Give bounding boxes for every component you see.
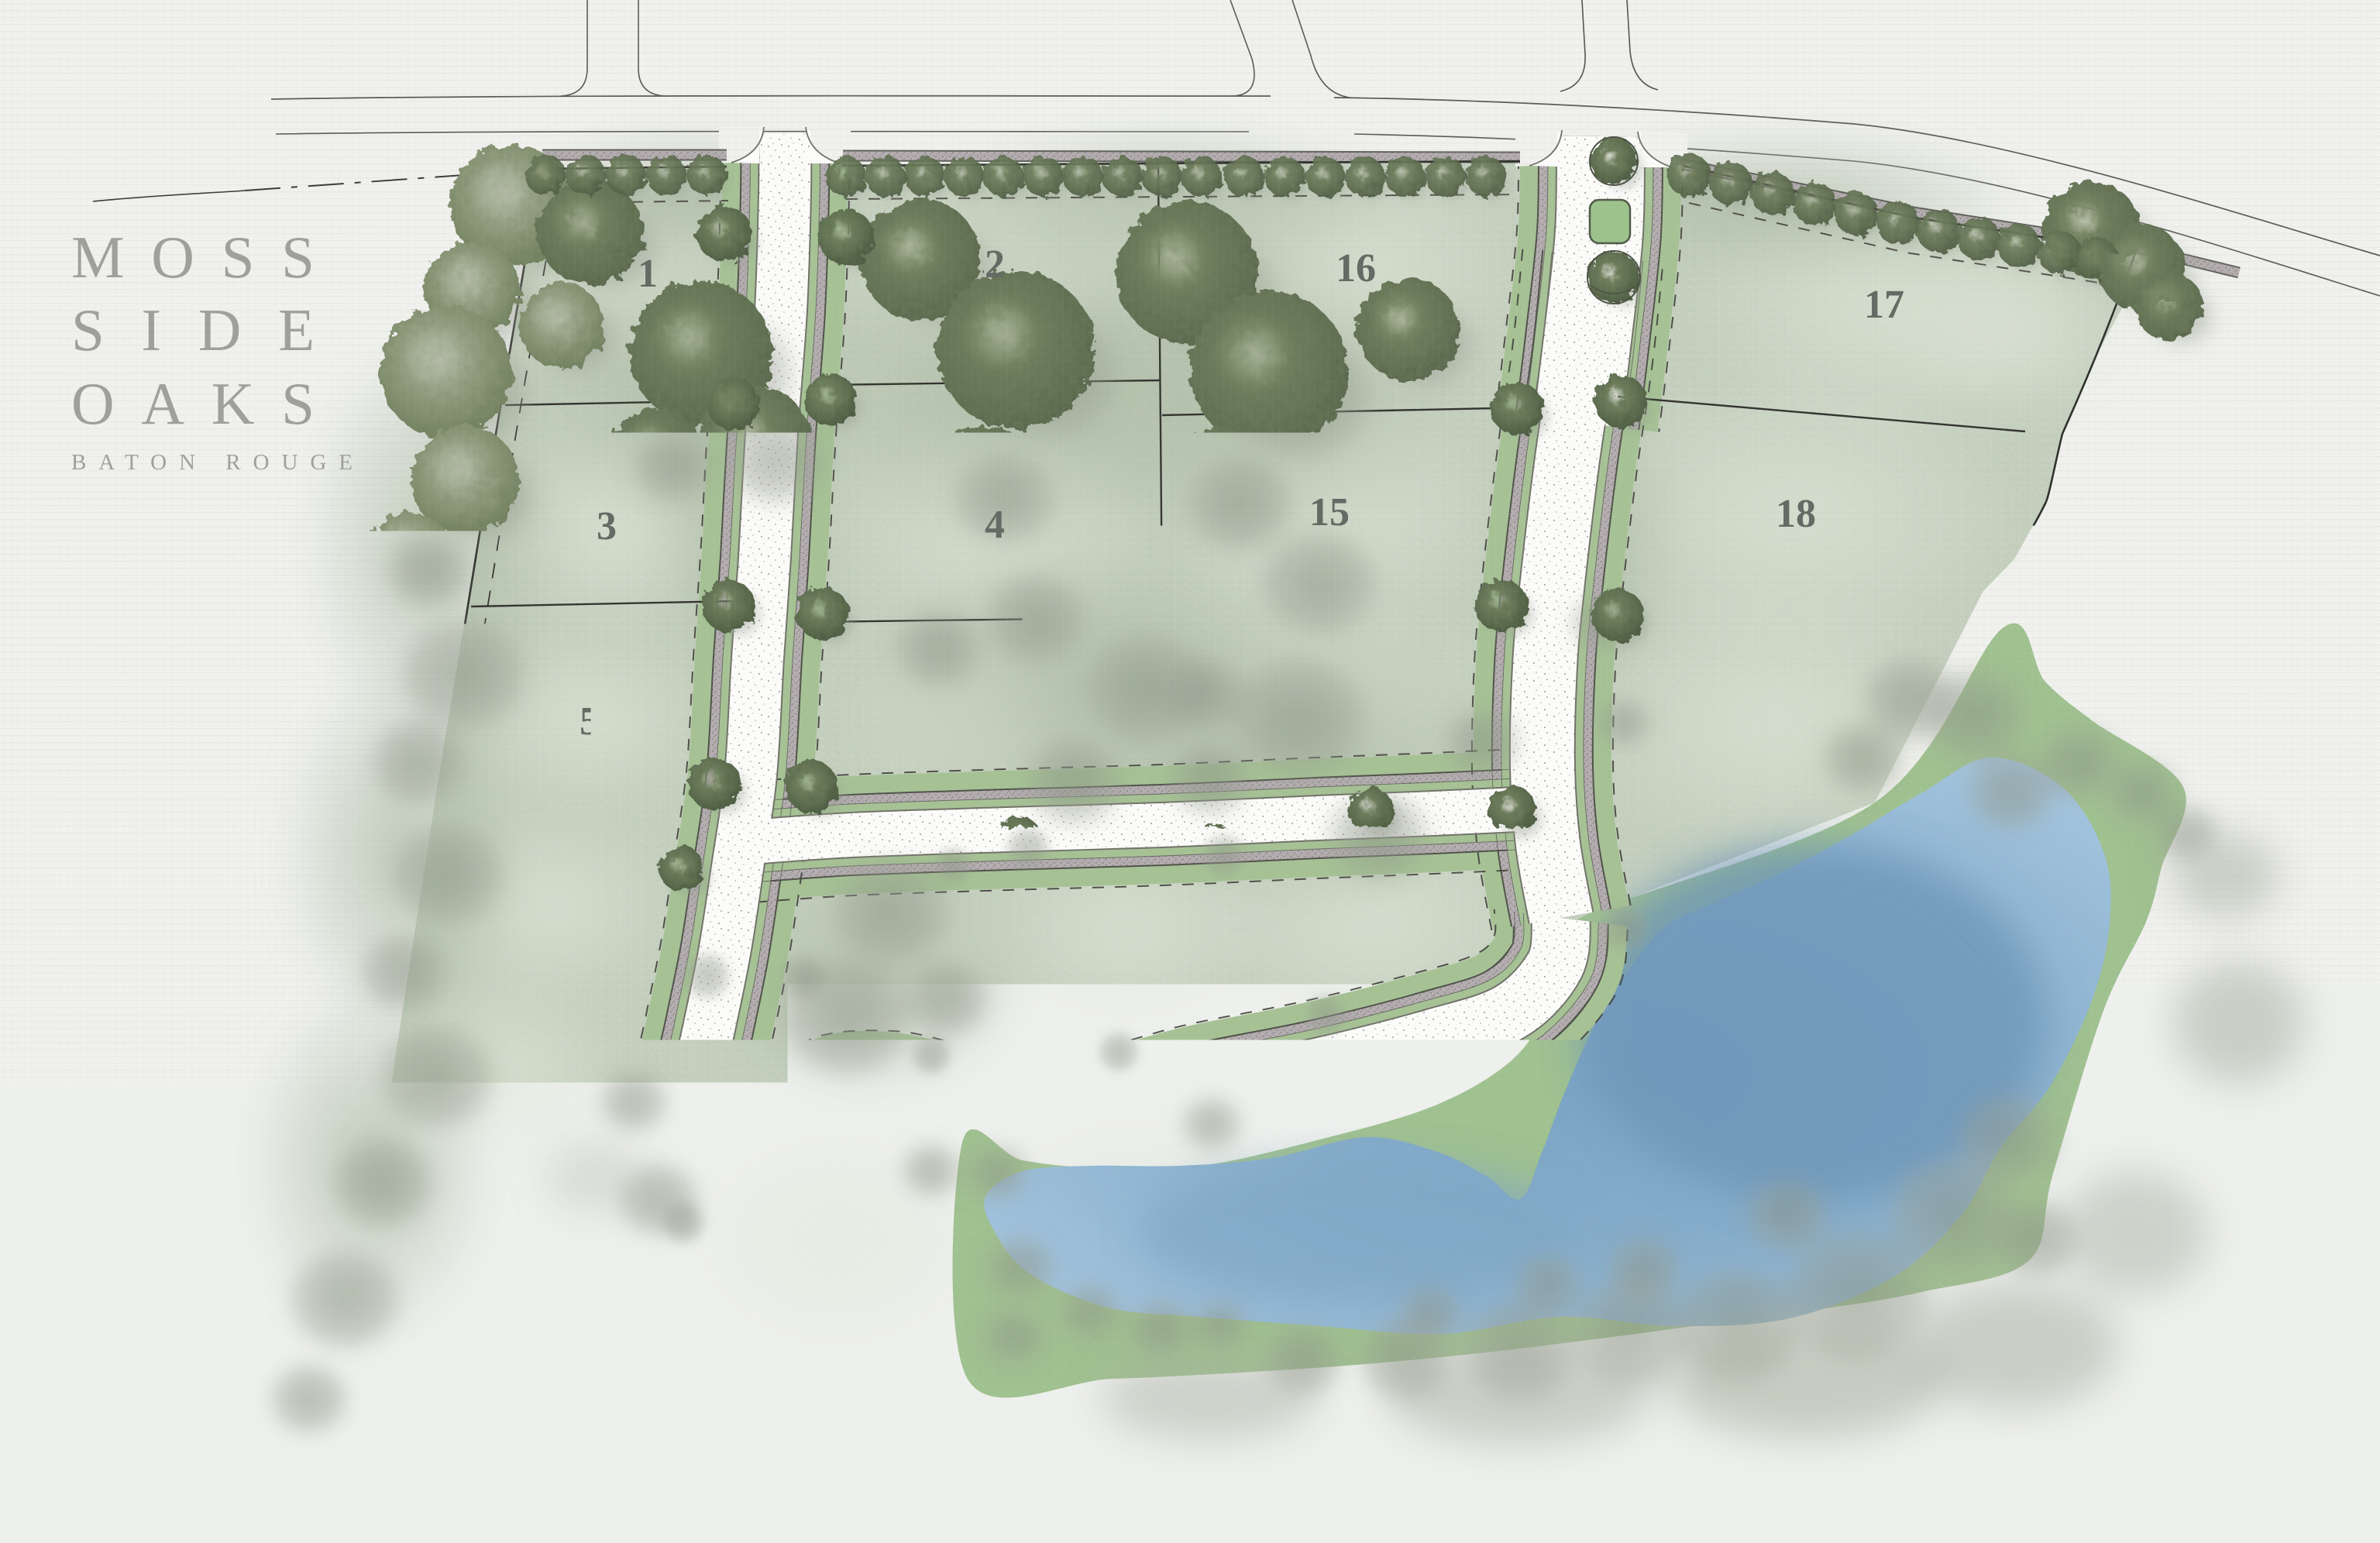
svg-text:9: 9 (822, 1264, 842, 1308)
svg-text:4: 4 (985, 503, 1005, 547)
svg-text:16: 16 (1336, 246, 1376, 290)
svg-text:1: 1 (638, 252, 658, 296)
svg-text:MLS: MLS (2338, 1518, 2380, 1539)
svg-text:14: 14 (1322, 682, 1363, 727)
svg-text:11: 11 (864, 923, 902, 967)
svg-text:19: 19 (1757, 697, 1797, 741)
svg-text:2: 2 (985, 242, 1005, 287)
svg-text:6: 6 (540, 884, 560, 928)
svg-text:ROAM: ROAM (2257, 1512, 2340, 1539)
svg-text:Tree size and location are app: Tree size and location are approximate. … (1326, 1477, 2246, 1512)
svg-text:10: 10 (971, 695, 1011, 739)
svg-text:12: 12 (1108, 908, 1148, 952)
svg-text:8: 8 (531, 1269, 552, 1313)
svg-text:17: 17 (1864, 283, 1904, 327)
svg-text:18: 18 (1776, 492, 1816, 536)
svg-text:5: 5 (580, 699, 600, 744)
svg-text:13: 13 (1353, 892, 1393, 936)
svg-text:7: 7 (492, 1042, 512, 1086)
svg-text:15: 15 (1309, 490, 1350, 534)
svg-text:3: 3 (597, 504, 617, 548)
